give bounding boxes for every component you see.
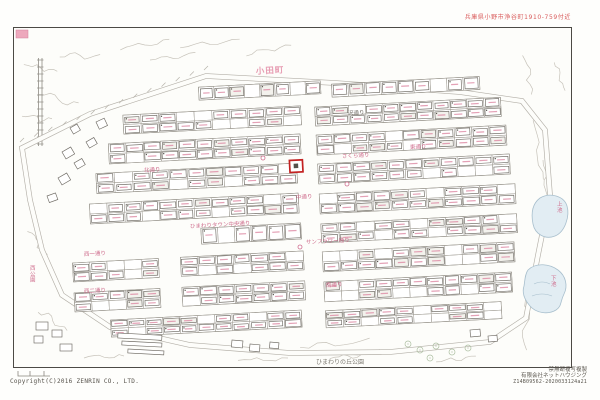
address-note: 兵庫県小野市浄谷町1910-759付近 bbox=[465, 12, 571, 21]
map-canvas: 沢通りさくら通り中通り東通り北通りひまわりタウン中央通りサンフラワー通り南通り西… bbox=[14, 28, 571, 367]
copyright-text: Copyright(C)2016 ZENRIN CO., LTD. bbox=[10, 378, 139, 385]
vertical-place-label: 西公園 bbox=[30, 265, 36, 284]
print-info: 禁無断複写複製 有限会社ネットハウジング Z14B09562-202003312… bbox=[513, 367, 587, 386]
print-serial-number: Z14B09562-2020033124a21 bbox=[513, 380, 587, 386]
area-name-label: 小田町 bbox=[255, 65, 285, 78]
vertical-place-label: 下池 bbox=[551, 275, 557, 288]
street-label: 西二通り bbox=[84, 286, 106, 295]
park-name-label: ひまわりの丘公園 bbox=[316, 359, 364, 366]
street-label: 西一通り bbox=[84, 249, 106, 258]
street-label: 北通り bbox=[144, 165, 161, 174]
scale-bar bbox=[17, 370, 51, 378]
highlighted-parcel bbox=[289, 160, 303, 173]
map-frame: 沢通りさくら通り中通り東通り北通りひまわりタウン中央通りサンフラワー通り南通り西… bbox=[13, 27, 572, 368]
vertical-place-label: 上池 bbox=[557, 200, 563, 214]
